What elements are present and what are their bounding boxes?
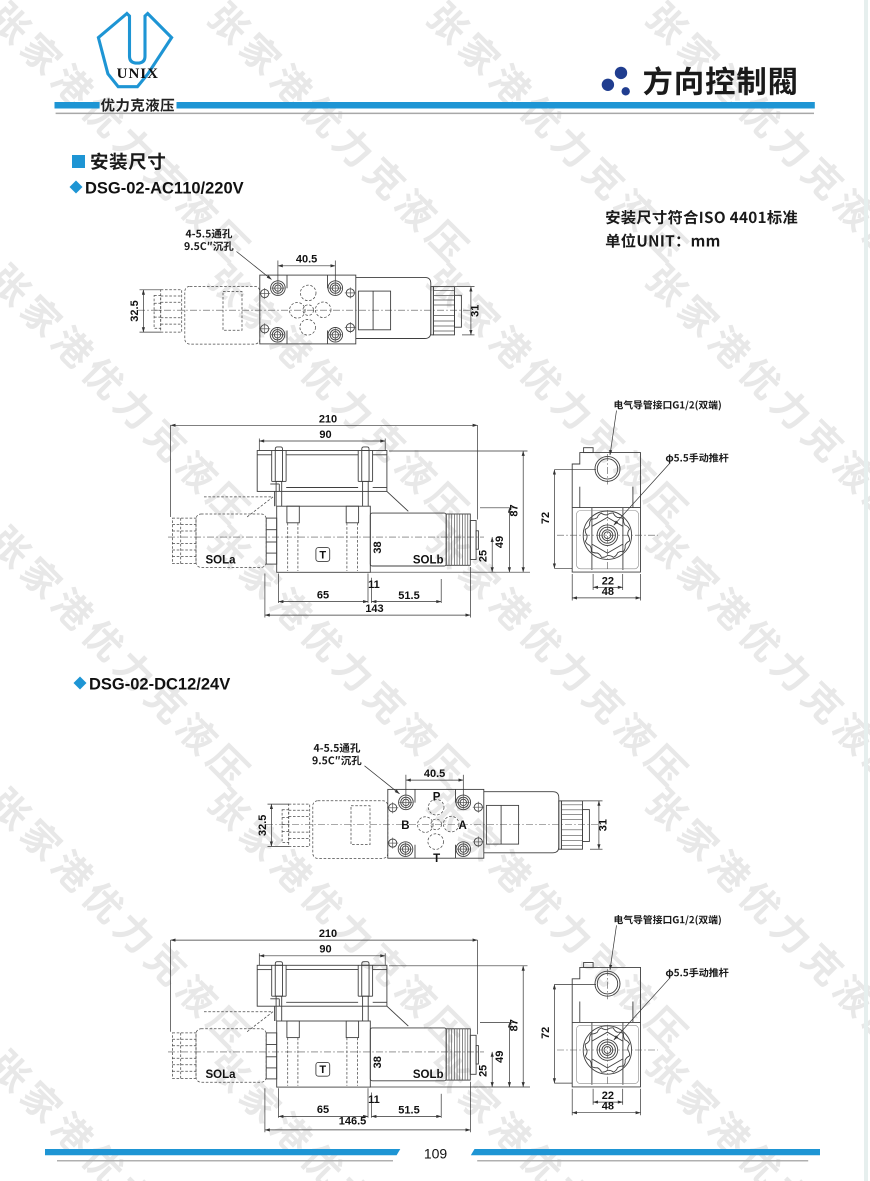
svg-text:90: 90 xyxy=(319,429,331,441)
svg-text:P: P xyxy=(433,792,441,804)
svg-text:T: T xyxy=(319,549,326,561)
svg-text:40.5: 40.5 xyxy=(296,254,317,266)
svg-text:65: 65 xyxy=(317,589,329,601)
svg-text:51.5: 51.5 xyxy=(398,590,419,602)
svg-text:32.5: 32.5 xyxy=(129,300,141,321)
svg-text:210: 210 xyxy=(319,413,337,425)
svg-text:38: 38 xyxy=(372,541,384,553)
svg-text:SOLa: SOLa xyxy=(206,554,237,566)
svg-text:B: B xyxy=(401,820,409,832)
svg-text:146.5: 146.5 xyxy=(339,1115,367,1127)
svg-text:87: 87 xyxy=(508,504,520,516)
svg-text:SOLb: SOLb xyxy=(413,554,444,566)
svg-text:A: A xyxy=(458,820,466,832)
svg-text:T: T xyxy=(433,853,440,865)
svg-text:143: 143 xyxy=(365,603,383,615)
svg-text:25: 25 xyxy=(478,550,490,562)
svg-text:31: 31 xyxy=(470,305,482,317)
svg-text:49: 49 xyxy=(494,536,506,548)
svg-text:72: 72 xyxy=(540,512,552,524)
svg-text:11: 11 xyxy=(368,579,380,591)
svg-text:109: 109 xyxy=(424,1146,448,1162)
svg-text:48: 48 xyxy=(602,586,614,598)
